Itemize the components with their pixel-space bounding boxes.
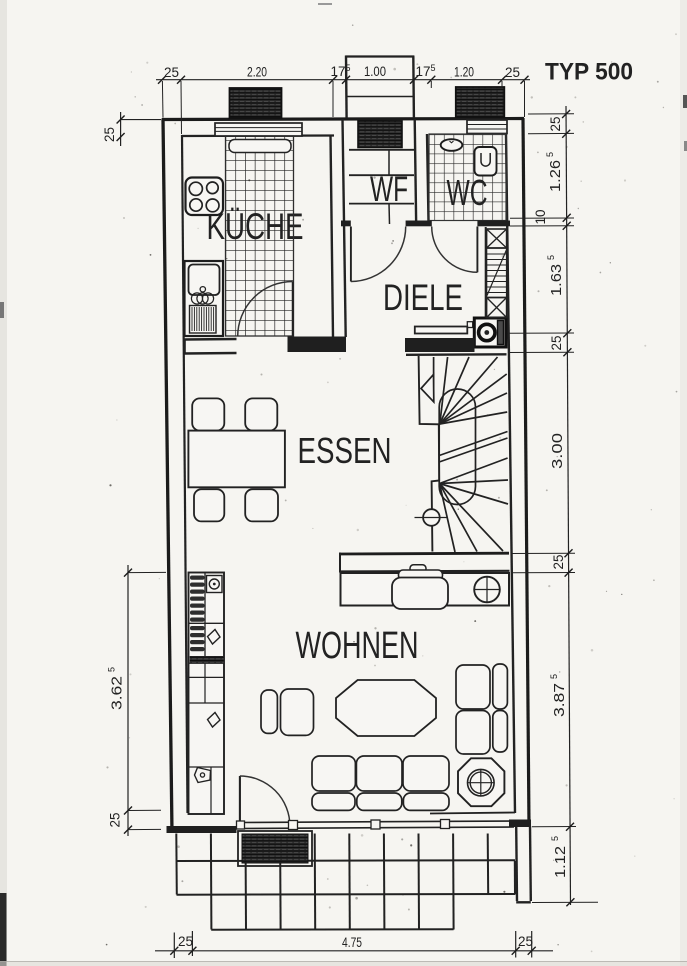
svg-text:5: 5	[549, 674, 559, 679]
svg-text:WF: WF	[370, 170, 408, 209]
svg-text:25: 25	[102, 127, 117, 142]
svg-text:DIELE: DIELE	[383, 277, 463, 318]
svg-text:3.00: 3.00	[550, 433, 566, 469]
svg-text:25: 25	[178, 934, 193, 949]
svg-text:3.87: 3.87	[552, 683, 568, 717]
svg-text:17: 17	[415, 64, 430, 79]
svg-text:5: 5	[550, 836, 560, 841]
svg-text:1.12: 1.12	[553, 846, 569, 878]
svg-text:5: 5	[545, 152, 555, 157]
svg-text:WOHNEN: WOHNEN	[296, 625, 419, 667]
svg-text:17: 17	[330, 64, 345, 79]
svg-text:25: 25	[549, 335, 564, 350]
svg-text:1.20: 1.20	[454, 65, 474, 80]
svg-text:1.63: 1.63	[549, 264, 565, 296]
svg-text:5: 5	[546, 255, 556, 260]
svg-text:25: 25	[164, 65, 179, 80]
svg-text:TYP 500: TYP 500	[545, 59, 633, 86]
svg-text:2.20: 2.20	[247, 65, 267, 80]
svg-text:ESSEN: ESSEN	[298, 430, 392, 471]
svg-text:25: 25	[548, 116, 563, 131]
svg-text:25: 25	[108, 812, 123, 827]
svg-text:10: 10	[533, 209, 548, 224]
svg-text:5: 5	[431, 63, 436, 73]
svg-text:1.26: 1.26	[548, 160, 564, 192]
svg-text:WC: WC	[447, 172, 488, 213]
svg-text:25: 25	[505, 65, 520, 80]
svg-text:5: 5	[346, 63, 351, 73]
svg-text:1.00: 1.00	[364, 64, 386, 79]
svg-text:25: 25	[551, 554, 566, 569]
svg-text:5: 5	[107, 667, 117, 672]
svg-text:25: 25	[518, 934, 533, 949]
svg-text:3.62: 3.62	[110, 676, 126, 710]
svg-text:4.75: 4.75	[342, 935, 362, 950]
